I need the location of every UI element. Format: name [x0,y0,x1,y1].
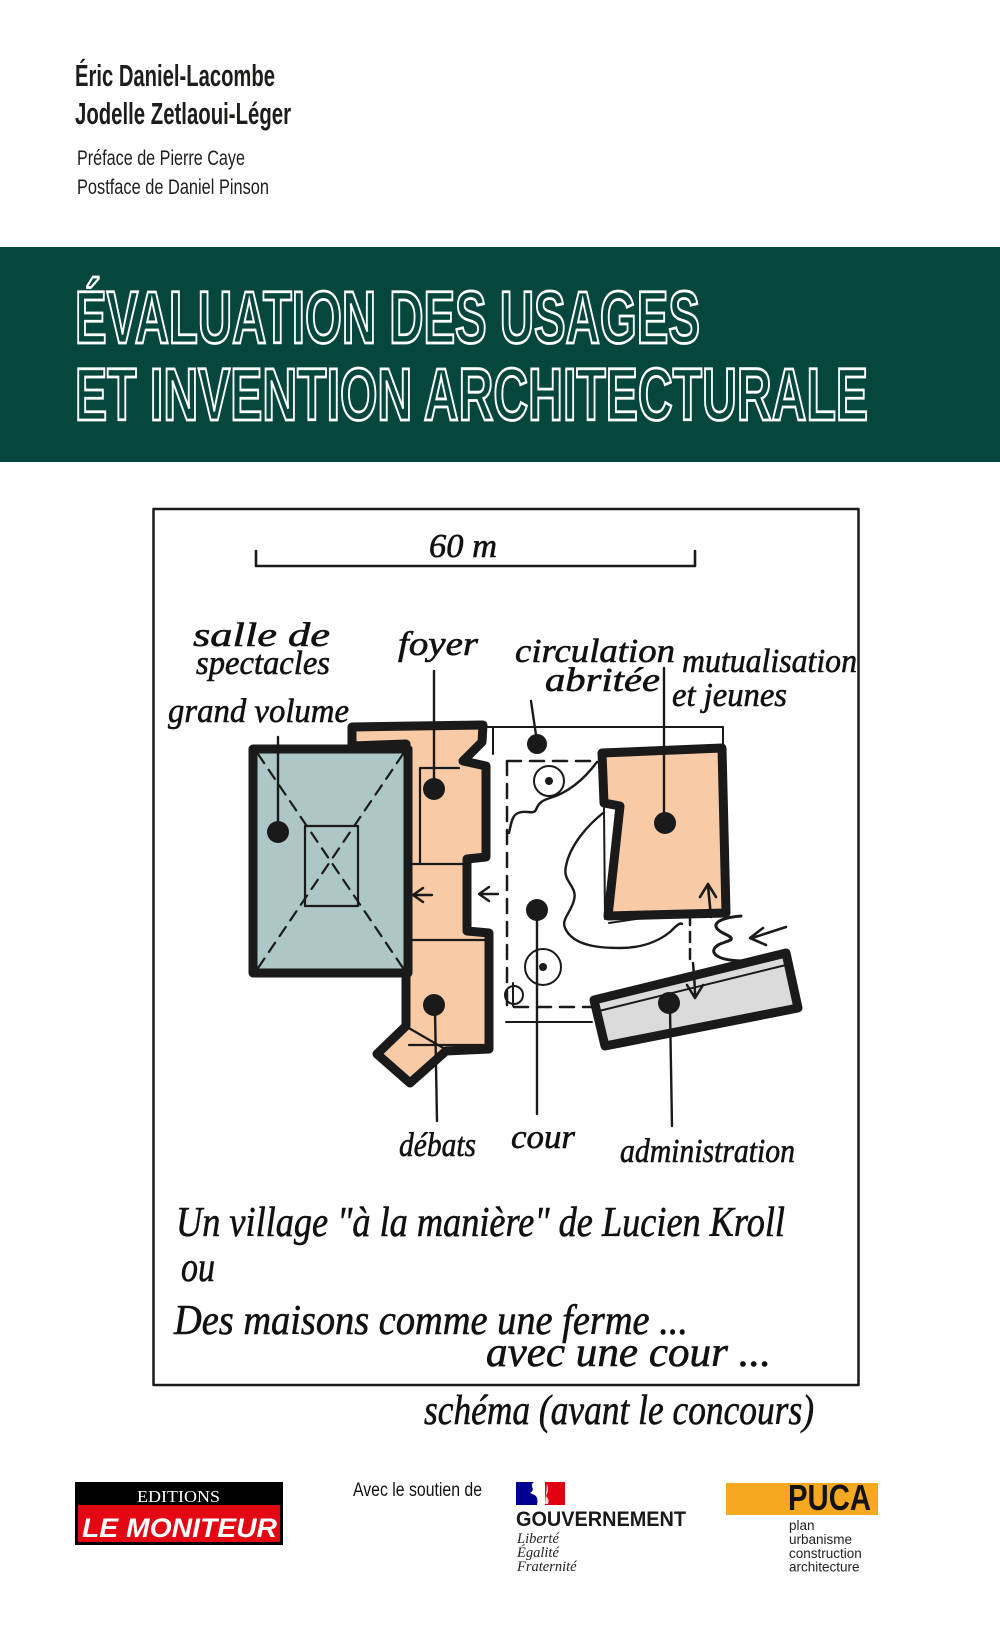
svg-text:ou: ou [181,1245,215,1291]
svg-text:GOUVERNEMENT: GOUVERNEMENT [516,1508,686,1531]
svg-text:et jeunes: et jeunes [672,677,787,714]
svg-text:Postface de Daniel Pinson: Postface de Daniel Pinson [77,175,269,199]
svg-text:Préface de Pierre Caye: Préface de Pierre Caye [77,146,245,170]
svg-text:grand volume: grand volume [168,693,349,730]
svg-text:PUCA: PUCA [788,1477,871,1518]
svg-text:ÉVALUATION DES USAGES: ÉVALUATION DES USAGES [75,276,700,359]
svg-text:mutualisation: mutualisation [682,643,857,680]
svg-text:Avec le soutien de: Avec le soutien de [353,1479,482,1501]
svg-text:foyer: foyer [398,626,479,663]
svg-text:Éric Daniel-Lacombe: Éric Daniel-Lacombe [75,58,275,93]
svg-text:schéma (avant le concours): schéma (avant le concours) [424,1388,814,1434]
svg-text:architecture: architecture [789,1560,860,1575]
svg-text:débats: débats [399,1127,476,1164]
svg-text:LE MONITEUR: LE MONITEUR [82,1513,278,1543]
svg-text:spectacles: spectacles [196,645,330,682]
svg-text:plan: plan [789,1518,815,1533]
svg-text:Jodelle Zetlaoui-Léger: Jodelle Zetlaoui-Léger [75,96,291,131]
svg-text:avec une cour ...: avec une cour ... [486,1330,771,1376]
svg-text:abritée: abritée [545,662,660,699]
svg-text:urbanisme: urbanisme [789,1532,852,1547]
svg-text:EDITIONS: EDITIONS [137,1487,220,1506]
svg-text:cour: cour [511,1119,576,1156]
svg-text:Fraternité: Fraternité [516,1559,577,1575]
svg-text:60 m: 60 m [429,528,497,565]
svg-text:administration: administration [620,1133,795,1170]
svg-text:Un village "à la manière" de L: Un village "à la manière" de Lucien Krol… [176,1200,785,1246]
svg-text:ET INVENTION ARCHITECTURALE: ET INVENTION ARCHITECTURALE [75,353,868,436]
